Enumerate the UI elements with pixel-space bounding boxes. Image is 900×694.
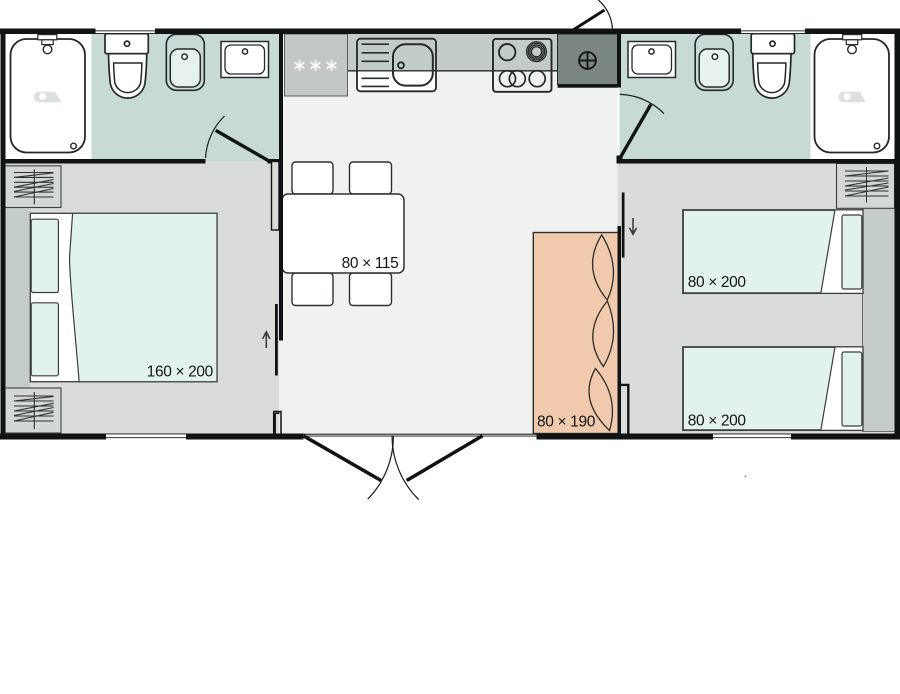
svg-text:160 × 200: 160 × 200 xyxy=(147,363,214,380)
svg-text:80 × 190: 80 × 190 xyxy=(537,414,596,431)
svg-text:80 × 115: 80 × 115 xyxy=(342,255,399,272)
svg-text:80 × 200: 80 × 200 xyxy=(688,412,747,429)
svg-text:80 × 200: 80 × 200 xyxy=(688,274,747,291)
